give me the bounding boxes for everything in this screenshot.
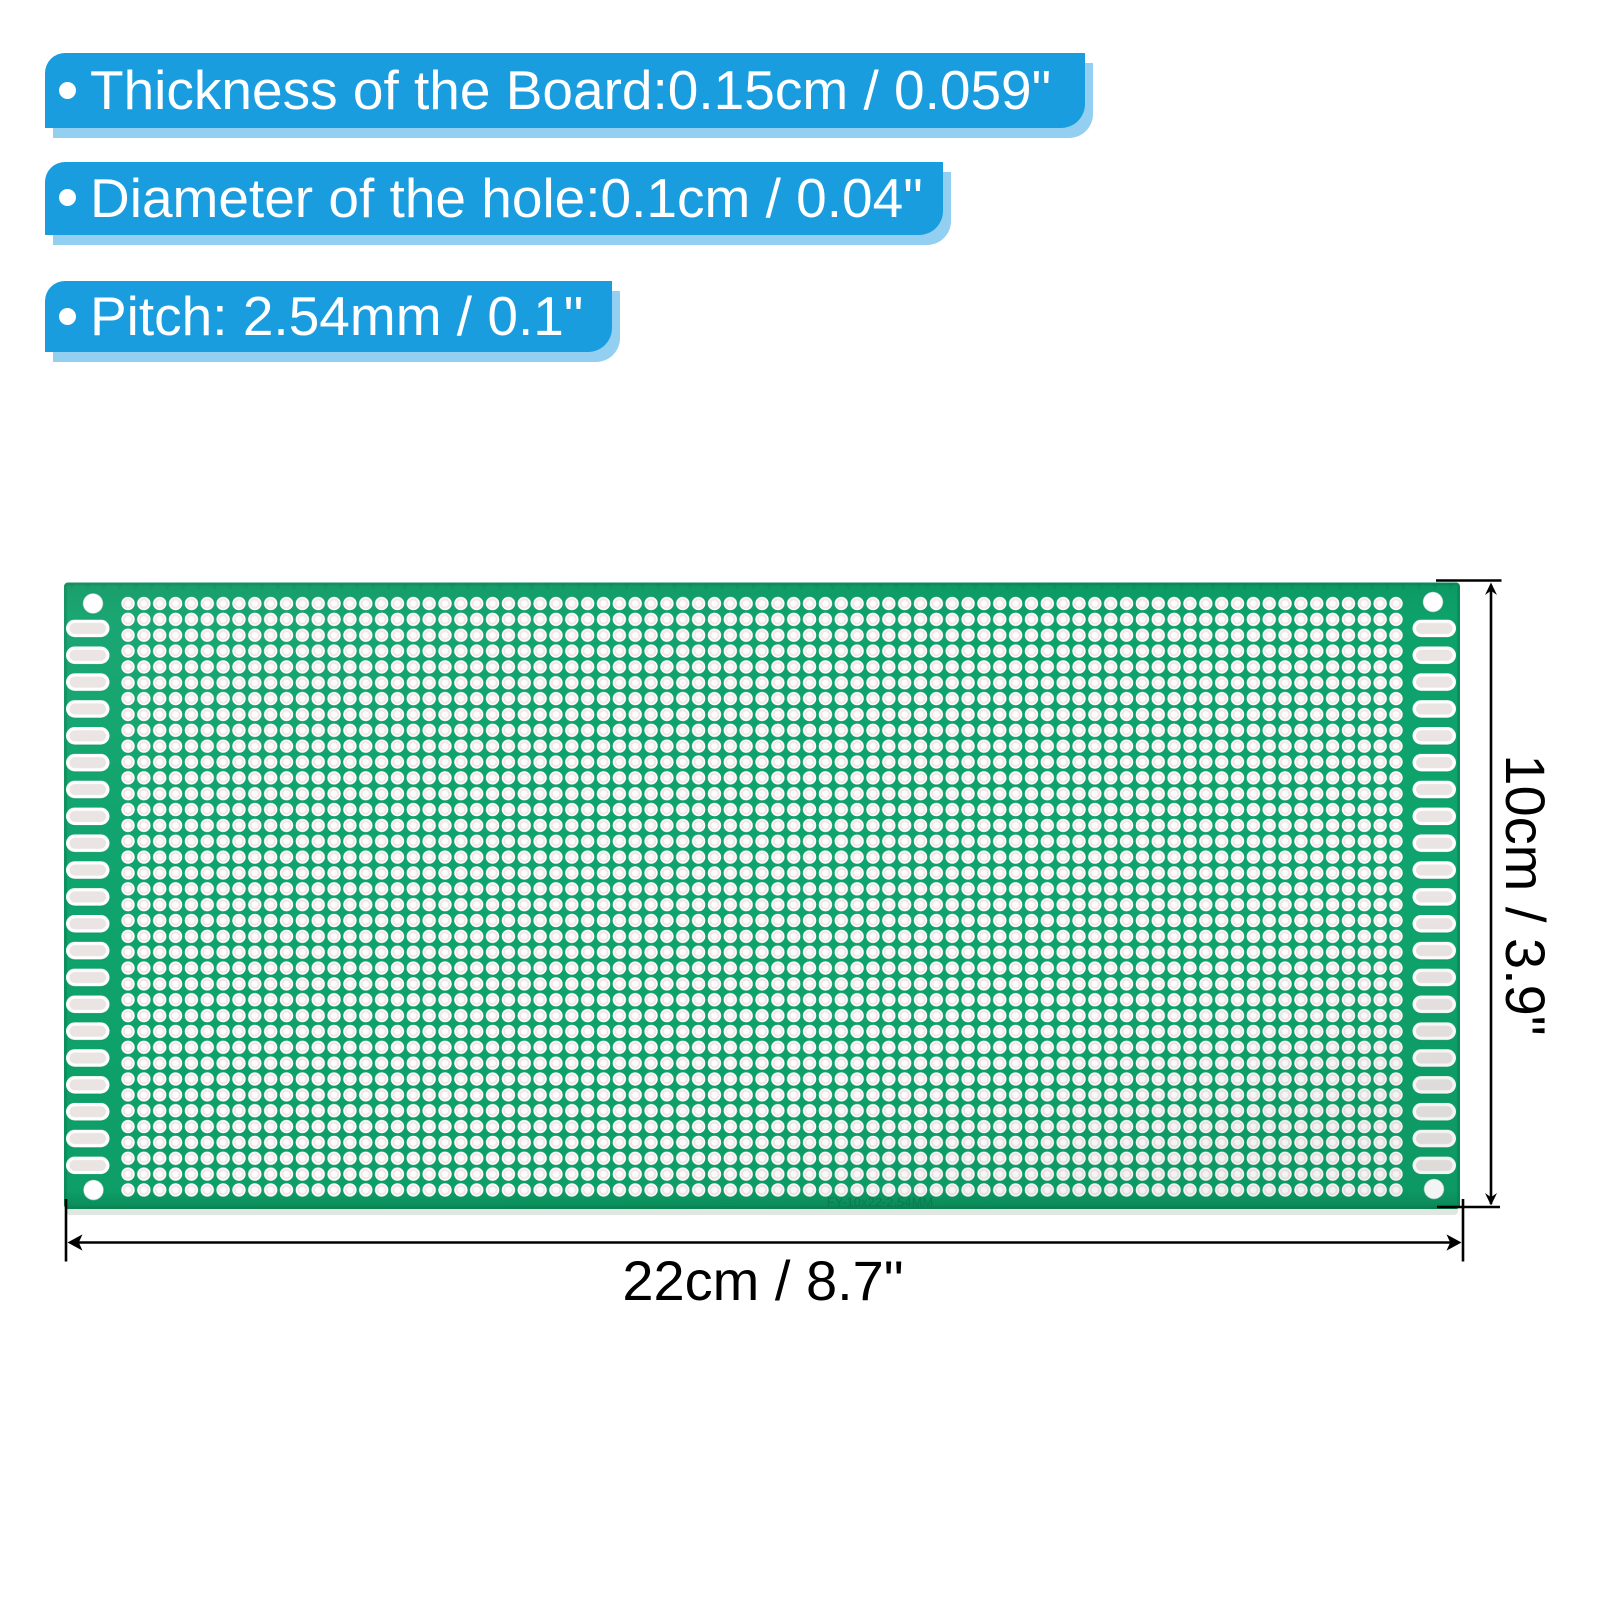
svg-text:FY-10x22-2.54MM: FY-10x22-2.54MM — [827, 1195, 933, 1210]
svg-text:22cm / 8.7": 22cm / 8.7" — [622, 1249, 903, 1312]
svg-text:10cm / 3.9": 10cm / 3.9" — [1494, 754, 1557, 1035]
